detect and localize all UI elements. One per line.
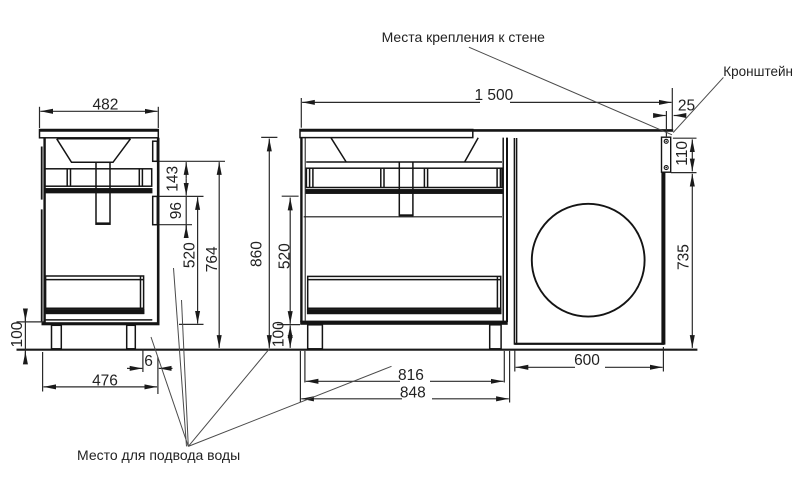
svg-text:Кронштейн: Кронштейн [723, 64, 793, 79]
svg-text:100: 100 [270, 321, 287, 347]
svg-text:848: 848 [400, 385, 426, 402]
svg-text:600: 600 [574, 352, 600, 369]
svg-text:143: 143 [165, 166, 182, 192]
svg-text:Места крепления к стене: Места крепления к стене [382, 29, 546, 45]
svg-text:1 500: 1 500 [475, 87, 514, 104]
svg-text:860: 860 [249, 241, 266, 267]
svg-text:482: 482 [92, 97, 118, 114]
svg-text:96: 96 [168, 202, 185, 219]
svg-text:735: 735 [675, 244, 692, 270]
svg-text:6: 6 [144, 353, 153, 370]
svg-text:520: 520 [276, 243, 293, 269]
svg-text:520: 520 [182, 242, 199, 268]
svg-text:25: 25 [678, 98, 695, 115]
svg-text:764: 764 [204, 246, 221, 272]
svg-text:Место для подвода воды: Место для подвода воды [77, 447, 240, 463]
svg-text:100: 100 [9, 321, 26, 347]
svg-text:476: 476 [92, 373, 118, 390]
svg-text:816: 816 [398, 367, 424, 384]
svg-text:110: 110 [674, 141, 691, 166]
